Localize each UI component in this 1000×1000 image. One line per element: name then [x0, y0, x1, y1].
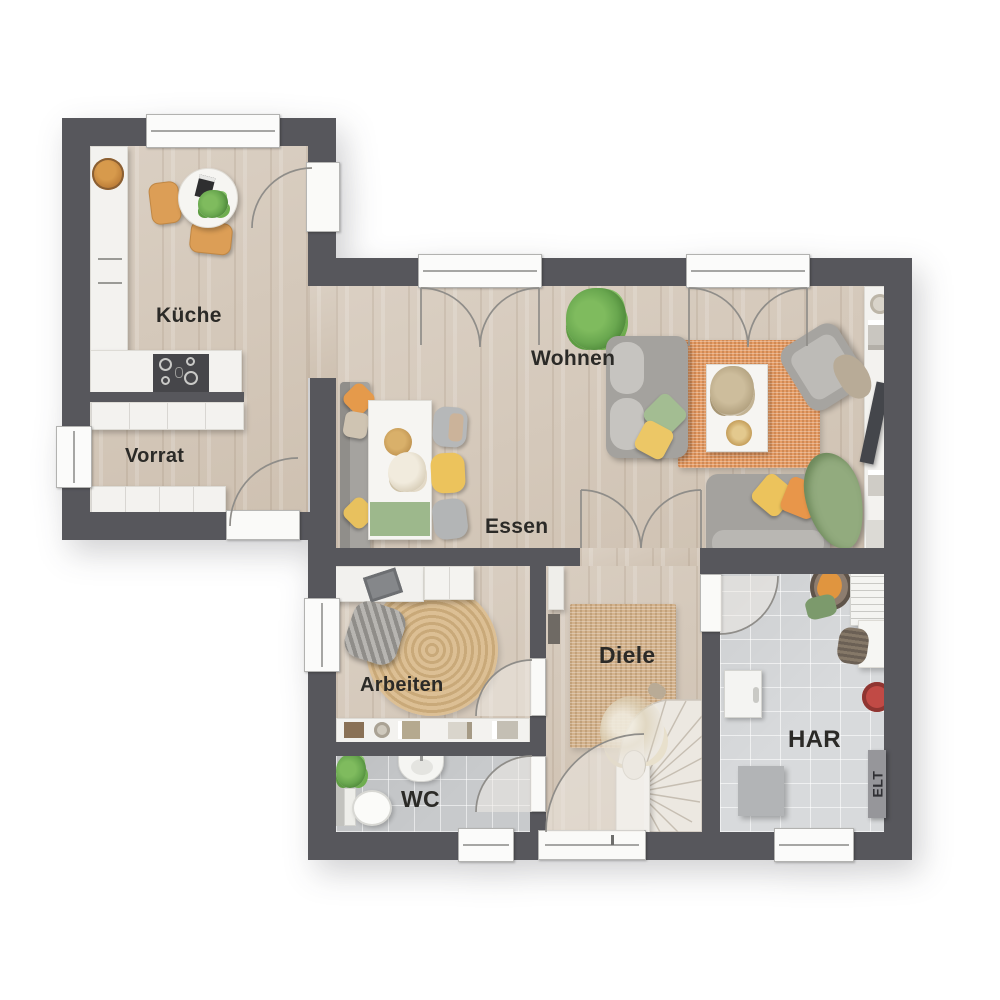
dining-chair [431, 497, 470, 541]
stair-vase [622, 750, 646, 780]
dining-chair [432, 406, 469, 448]
wall-hall-har [702, 632, 720, 832]
front-door-handle [611, 835, 614, 845]
window-living-terrace [686, 254, 810, 288]
hall-mirror [548, 614, 560, 644]
room-label-essen: Essen [485, 515, 548, 539]
wall-kitchen-right-b [308, 230, 336, 258]
wall-main-top-b [540, 258, 688, 286]
elt-distribution-box: ELT [868, 750, 886, 818]
wall-right [884, 258, 912, 860]
door-wc [530, 756, 546, 812]
door-kitchen-terrace [306, 162, 340, 232]
dining-flowers [388, 452, 426, 492]
wall-office-wc [336, 742, 530, 756]
room-label-kueche: Küche [156, 304, 222, 328]
window-living-1 [418, 254, 542, 288]
coffee-table-bowl [726, 420, 752, 446]
wall-bottom-b [512, 832, 540, 860]
kitchen-drawer-handle [98, 282, 122, 284]
wall-kitchen-counter-divider [90, 392, 244, 402]
washing-machine [724, 670, 762, 718]
pantry-shelf-top [90, 402, 244, 430]
office-cabinet [424, 566, 474, 600]
wall-hall-west-a [530, 548, 546, 658]
door-pantry-side-entry [226, 510, 300, 540]
kitchen-drawer-handle [98, 258, 122, 260]
window-har [774, 828, 854, 862]
kitchen-chair [148, 180, 183, 225]
sideboard-deco-bowl [374, 722, 390, 738]
sideboard-books [344, 722, 364, 738]
room-label-wc: WC [401, 786, 440, 813]
dining-chair-yellow [430, 452, 466, 494]
cooktop [153, 354, 209, 392]
wall-bottom-c [646, 832, 778, 860]
wall-living-har [700, 548, 884, 574]
wall-left-lower-b [308, 670, 336, 832]
table-runner-green [370, 502, 430, 536]
toilet-bowl [352, 790, 392, 826]
window-wc [458, 828, 514, 862]
har-gray-box [738, 766, 784, 816]
sideboard-books [448, 722, 472, 739]
room-label-vorrat: Vorrat [125, 445, 184, 468]
window-pantry [56, 426, 92, 488]
wall-bottom-a [308, 832, 462, 860]
door-office [530, 658, 546, 716]
wall-bottom-d [852, 832, 912, 860]
wall-kitchen-right-a [308, 118, 336, 164]
room-label-wohnen: Wohnen [531, 347, 615, 371]
room-label-diele: Diele [599, 642, 655, 669]
wall-pantry-dining [310, 378, 336, 518]
wall-pantry-bottom-a [62, 512, 228, 540]
sideboard-books [398, 721, 420, 739]
window-kitchen [146, 114, 280, 148]
wall-hall-west-b [530, 716, 546, 756]
floor-plan: ELT Küche Vorrat Wohnen Essen Arbeiten [0, 0, 1000, 1000]
elt-label: ELT [869, 771, 885, 798]
room-label-arbeiten: Arbeiten [360, 674, 444, 697]
sideboard-books [492, 721, 518, 739]
floor-doorway-living [580, 548, 700, 566]
room-label-har: HAR [788, 726, 841, 754]
window-office [304, 598, 340, 672]
hall-console [548, 566, 564, 610]
floor-passage [308, 286, 338, 378]
wall-hall-west-c [530, 812, 546, 832]
wall-main-top-a [308, 258, 420, 286]
door-har [700, 574, 722, 632]
door-front-entry [538, 830, 646, 860]
floor-plan-body: ELT Küche Vorrat Wohnen Essen Arbeiten [0, 0, 1000, 1000]
bench-pillow-sand [342, 410, 370, 440]
fruit-basket [92, 158, 124, 190]
